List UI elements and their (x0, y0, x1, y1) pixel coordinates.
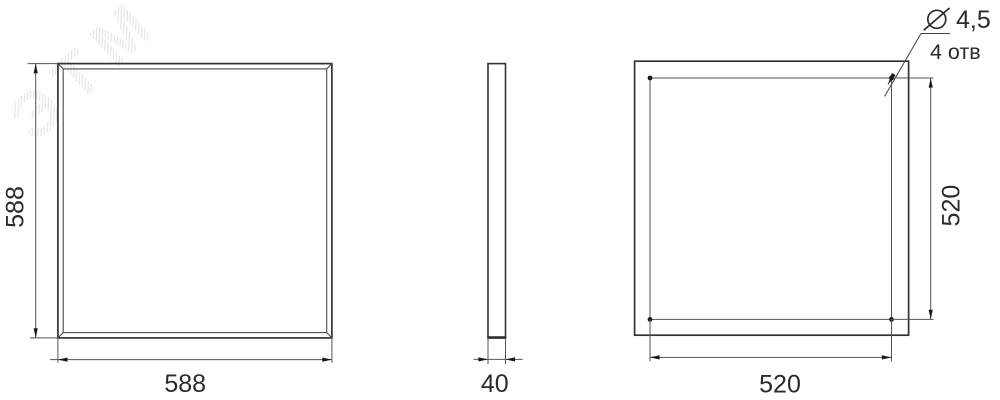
svg-text:520: 520 (759, 371, 801, 399)
svg-text:520: 520 (938, 185, 966, 227)
svg-text:588: 588 (164, 370, 206, 398)
svg-text:588: 588 (1, 186, 29, 228)
svg-text:4 отв: 4 отв (930, 40, 981, 64)
svg-text:4,5: 4,5 (956, 6, 991, 34)
svg-text:40: 40 (481, 370, 509, 398)
